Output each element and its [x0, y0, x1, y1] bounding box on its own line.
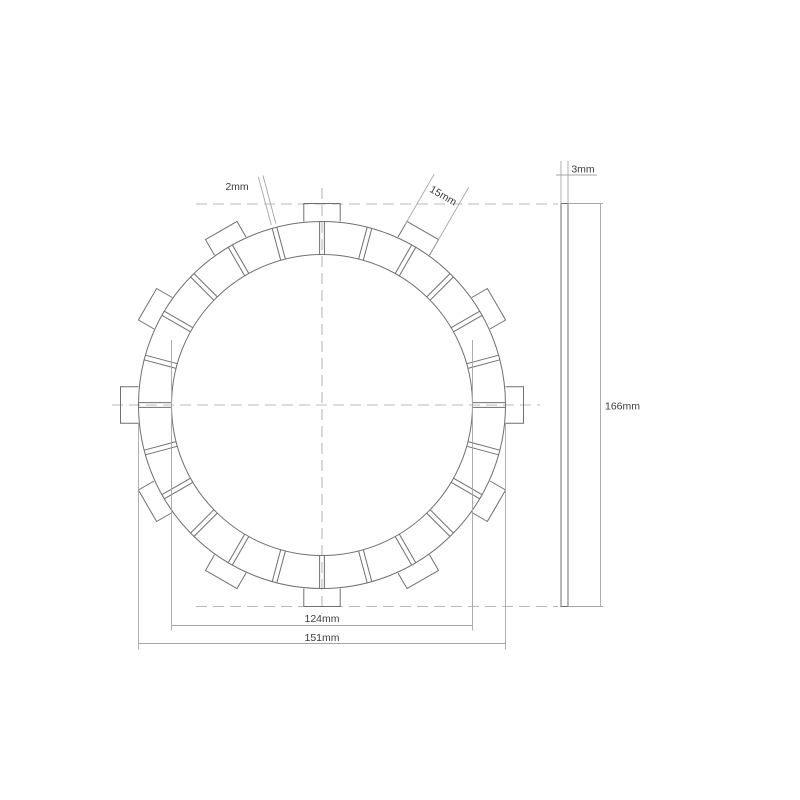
drive-tab [206, 221, 247, 255]
drive-tab [206, 555, 247, 589]
pad-slot-edge [194, 274, 217, 297]
tab-width-label: 15mm [427, 184, 458, 209]
pad-slot-edge [363, 228, 372, 260]
pad-slot-edge [272, 228, 281, 260]
pad-slot-edge [359, 227, 368, 259]
pad-slot-edge [191, 510, 214, 533]
pad-slot-edge [430, 510, 453, 533]
pad-slot-edge [363, 550, 372, 582]
drive-tab [138, 289, 172, 330]
pad-slot-edge [359, 551, 368, 583]
pad-slot-edge [277, 551, 286, 583]
thickness-label: 3mm [571, 164, 595, 176]
pad-slot-edge [191, 277, 214, 300]
drive-tab [138, 481, 172, 522]
pad-slot-edge [427, 274, 450, 297]
pad-slot-edge [467, 446, 499, 455]
overall-diameter-label: 166mm [605, 401, 640, 413]
dimension-labels: 2mm 15mm 3mm 166mm 124mm 151mm [225, 164, 640, 645]
side-view [561, 204, 568, 607]
pad-slot-edge [277, 227, 286, 259]
pad-slot-edge [145, 355, 177, 364]
friction-outer-diameter-label: 151mm [304, 632, 339, 644]
pad-slot-edge [145, 446, 177, 455]
pad-slot-edge [427, 513, 450, 536]
centerlines [112, 188, 558, 614]
pad-slot-edge [430, 277, 453, 300]
drive-tab [398, 555, 439, 589]
inner-diameter-label: 124mm [304, 613, 339, 625]
pad-slot-edge [272, 550, 281, 582]
drive-tab [472, 481, 506, 522]
pad-slot-edge [467, 355, 499, 364]
dim-15-leader [405, 174, 434, 224]
dim-2-leaders [258, 176, 276, 226]
slot-width-label: 2mm [225, 181, 249, 193]
drawing-canvas: 2mm 15mm 3mm 166mm 124mm 151mm [0, 0, 800, 800]
pad-slot-edge [194, 513, 217, 536]
plate-edge-profile [561, 204, 568, 607]
technical-drawing: 2mm 15mm 3mm 166mm 124mm 151mm [0, 0, 800, 800]
drive-tab [472, 289, 506, 330]
